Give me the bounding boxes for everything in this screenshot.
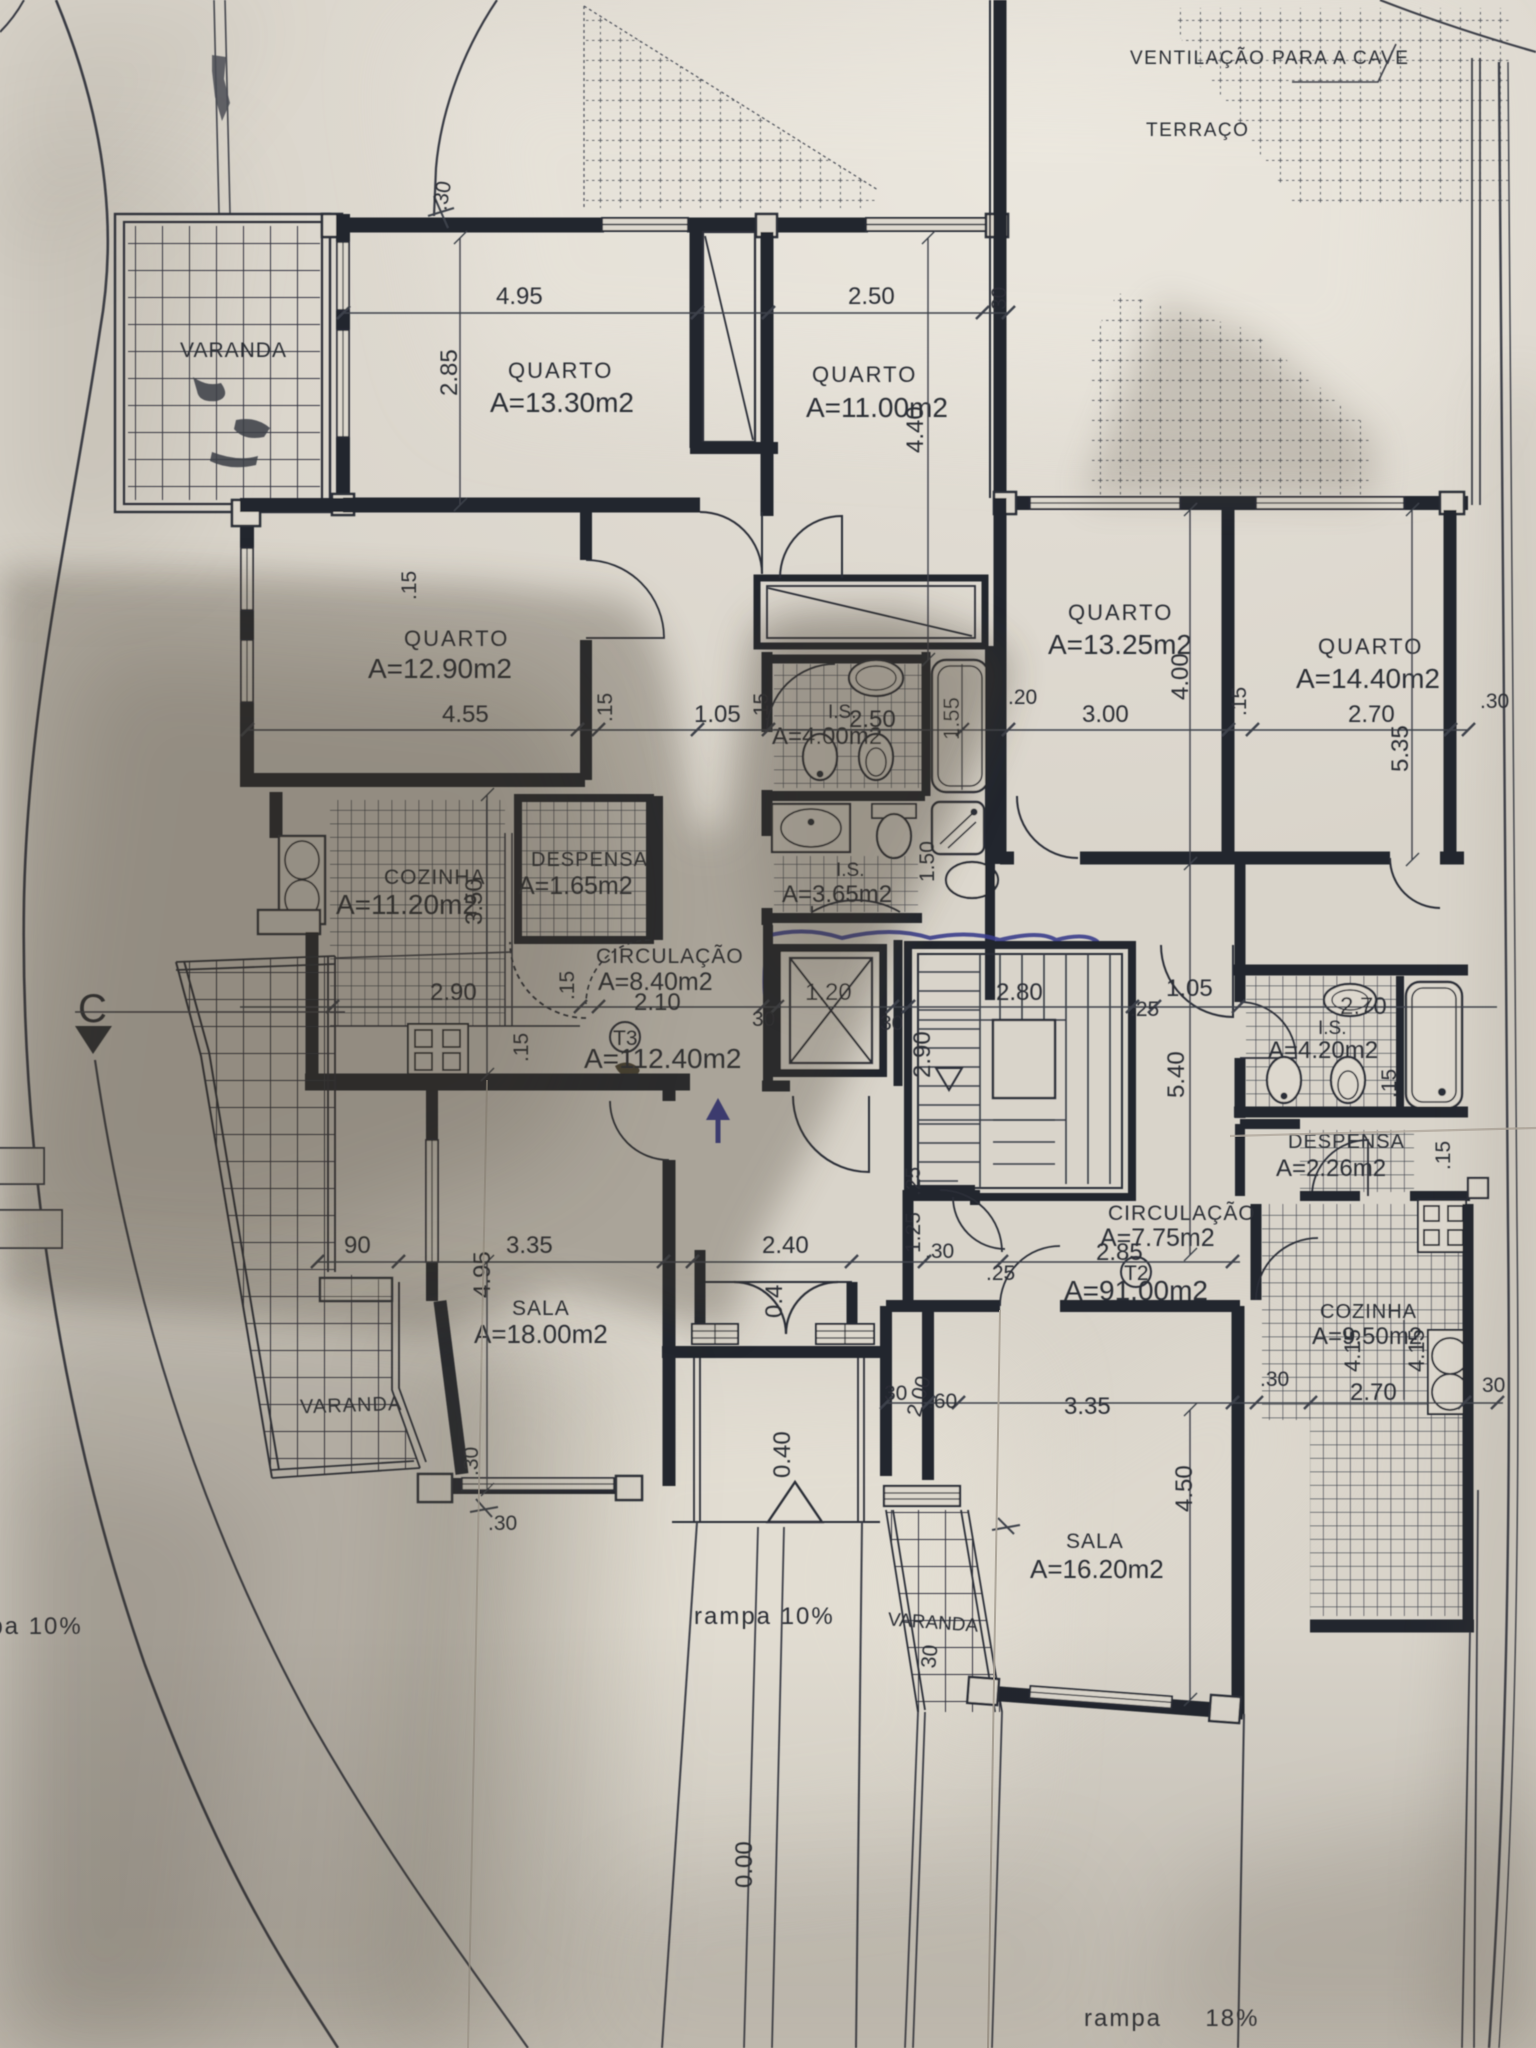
svg-text:QUARTO: QUARTO: [1068, 600, 1173, 625]
svg-text:2.80: 2.80: [996, 979, 1043, 1006]
svg-text:A=14.40m2: A=14.40m2: [1296, 663, 1440, 694]
svg-text:QUARTO: QUARTO: [1318, 634, 1423, 659]
svg-text:4.95: 4.95: [496, 283, 543, 310]
svg-text:5.35: 5.35: [1387, 725, 1414, 772]
svg-text:4.40: 4.40: [902, 406, 929, 453]
svg-text:1.05: 1.05: [694, 701, 741, 728]
svg-text:2.50: 2.50: [848, 283, 895, 310]
svg-text:30: 30: [988, 287, 1011, 310]
svg-text:5.40: 5.40: [1163, 1051, 1190, 1098]
svg-text:QUARTO: QUARTO: [812, 362, 917, 387]
svg-text:TERRAÇO: TERRAÇO: [1146, 120, 1249, 141]
svg-text:A=13.30m2: A=13.30m2: [490, 387, 634, 418]
svg-text:.15: .15: [1378, 1069, 1401, 1098]
svg-text:30: 30: [880, 1012, 903, 1035]
svg-text:VENTILAÇÃO PARA A CAVE: VENTILAÇÃO PARA A CAVE: [1130, 47, 1409, 69]
svg-text:I.S.: I.S.: [1318, 1018, 1347, 1039]
svg-text:1.05: 1.05: [1166, 975, 1213, 1002]
svg-text:QUARTO: QUARTO: [508, 358, 613, 383]
svg-text:2.70: 2.70: [1340, 993, 1387, 1020]
svg-text:4.00: 4.00: [1167, 653, 1194, 700]
svg-text:.20: .20: [1008, 686, 1037, 709]
svg-text:3.00: 3.00: [1082, 701, 1129, 728]
svg-text:2.90: 2.90: [909, 1031, 936, 1078]
svg-text:2.85: 2.85: [436, 349, 463, 396]
svg-text:2.70: 2.70: [1348, 701, 1395, 728]
svg-text:.15: .15: [1228, 687, 1251, 716]
svg-text:.25: .25: [1130, 998, 1159, 1021]
